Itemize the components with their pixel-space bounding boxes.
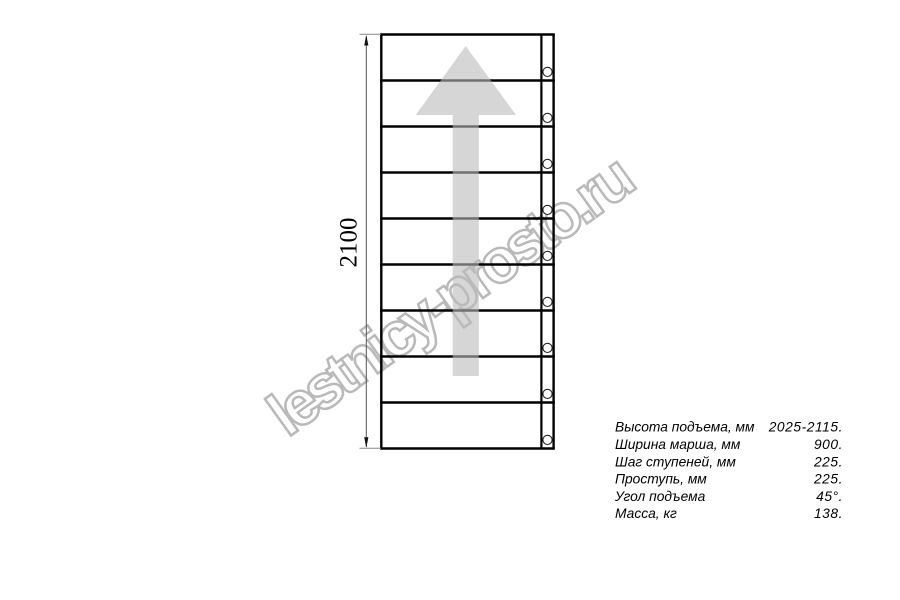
svg-text:225.: 225. [813,472,843,487]
svg-text:Масса, кг: Масса, кг [615,506,677,521]
svg-text:Ширина марша, мм: Ширина марша, мм [615,437,741,452]
svg-text:Проступь, мм: Проступь, мм [615,472,707,487]
svg-text:Угол подъема: Угол подъема [614,489,706,504]
svg-text:900.: 900. [814,437,843,452]
svg-text:138.: 138. [814,506,843,521]
svg-text:2100: 2100 [336,218,363,268]
svg-text:Шаг ступеней, мм: Шаг ступеней, мм [615,454,736,469]
svg-text:45°.: 45°. [816,489,843,504]
svg-text:Высота подъема, мм: Высота подъема, мм [615,420,755,435]
svg-text:225.: 225. [813,454,843,469]
svg-text:2025-2115.: 2025-2115. [768,420,843,435]
